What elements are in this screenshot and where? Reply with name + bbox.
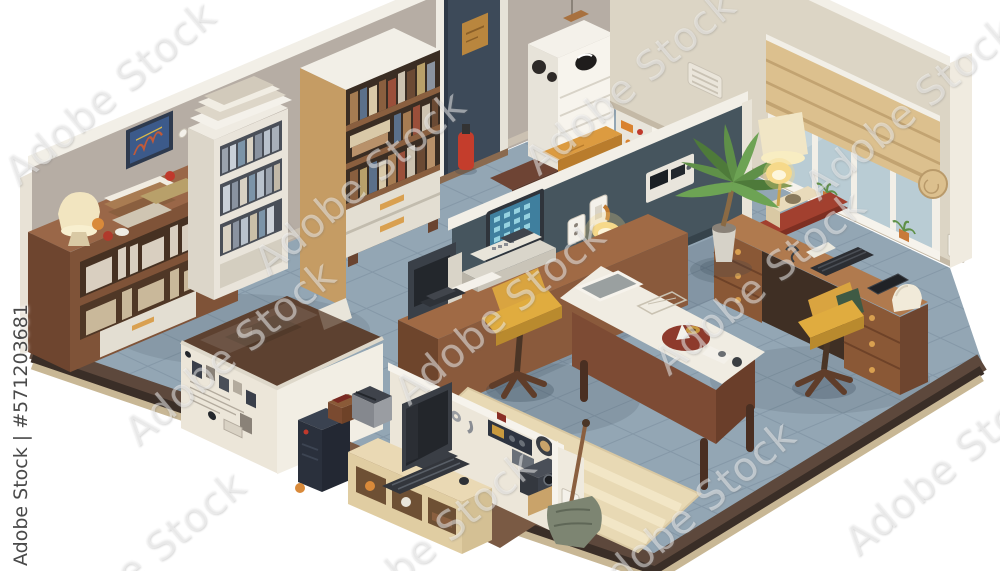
door-frame-right bbox=[500, 0, 508, 156]
orange-knob bbox=[295, 483, 305, 493]
desk-gadget bbox=[115, 228, 129, 236]
floor-lamp bbox=[758, 112, 808, 165]
mouse bbox=[459, 477, 469, 485]
office-illustration bbox=[0, 0, 1000, 571]
magazine-rack bbox=[188, 76, 292, 300]
compass-badge bbox=[103, 231, 113, 241]
orange-fruit bbox=[92, 218, 104, 230]
mouse bbox=[732, 357, 742, 367]
red-bird-figurine bbox=[165, 171, 175, 181]
right-wall-end-cap bbox=[950, 53, 972, 268]
blind-roll-end bbox=[919, 170, 947, 198]
stock-photo-canvas: Adobe Stock Adobe Stock Adobe Stock Adob… bbox=[0, 0, 1000, 571]
